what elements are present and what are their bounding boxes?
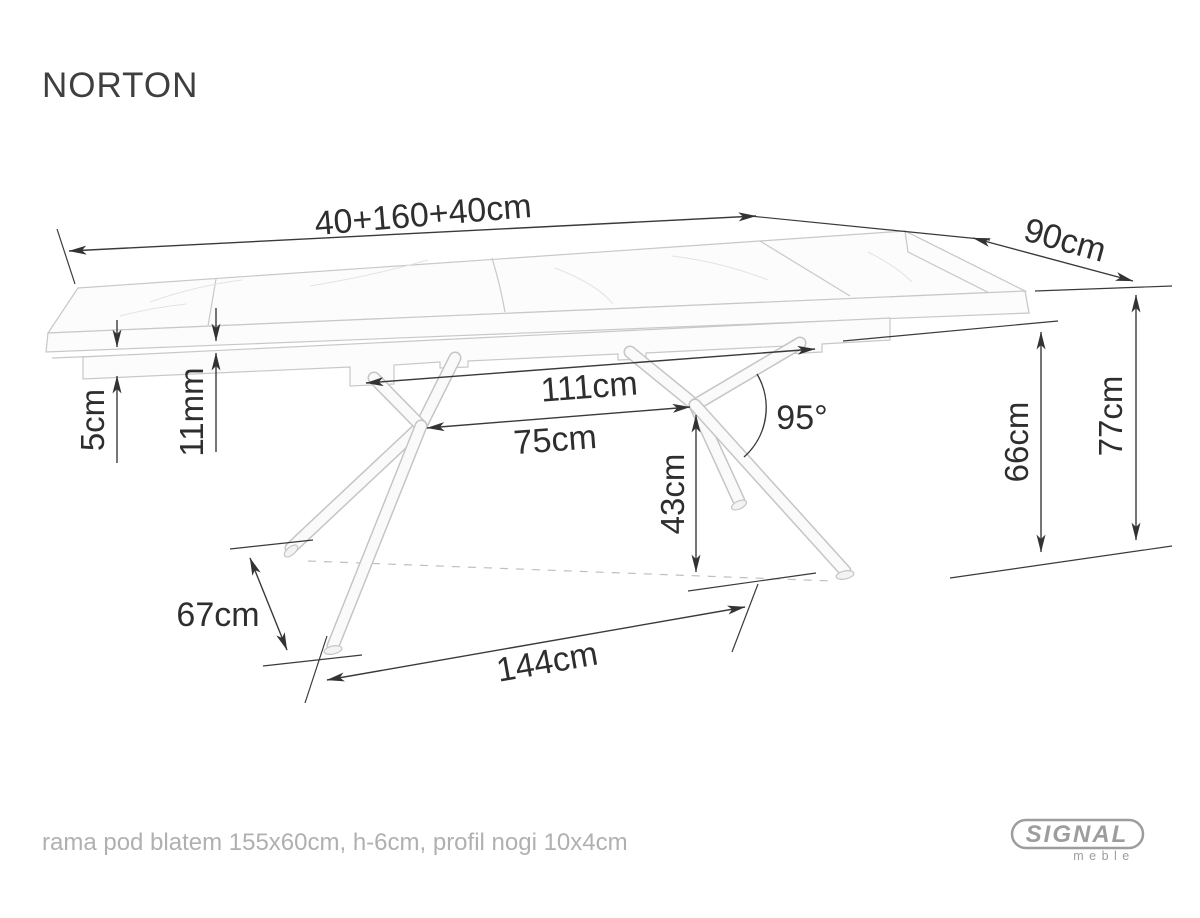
dim-label-hub-height: 43cm	[654, 454, 691, 535]
footer-note: rama pod blatem 155x60cm, h-6cm, profil …	[42, 829, 628, 856]
page-title: NORTON	[42, 66, 198, 105]
table-dimension-diagram: 40+160+40cm 90cm 5cm 11mm 111cm 75cm 43c…	[0, 0, 1200, 918]
dim-label-tabletop-thickness: 5cm	[74, 389, 111, 451]
extension-tick	[732, 584, 758, 652]
dim-label-foot-depth: 67cm	[176, 596, 259, 634]
dim-label-leaf-step: 11mm	[173, 367, 210, 456]
extension-line	[263, 655, 362, 666]
leg	[421, 358, 455, 426]
logo-brand-text: SIGNAL	[1026, 821, 1129, 848]
logo-subbrand-text: meble	[1073, 849, 1135, 863]
dim-label-tabletop-length: 40+160+40cm	[313, 187, 533, 243]
extension-line	[1035, 286, 1172, 291]
extension-tick	[57, 229, 75, 284]
dim-label-leg-hub-span: 75cm	[512, 418, 598, 462]
floor-reference-dashed-line	[308, 561, 832, 581]
dim-label-tabletop-depth: 90cm	[1020, 211, 1110, 270]
leg	[374, 378, 421, 426]
extension-tick	[305, 636, 327, 703]
dim-label-leg-angle: 95°	[776, 399, 827, 437]
brand-logo: SIGNAL meble	[1012, 820, 1143, 863]
dim-label-leg-mount-span: 111cm	[539, 364, 639, 409]
dim-label-table-height: 77cm	[1092, 376, 1129, 457]
extension-line	[688, 573, 816, 591]
leg	[695, 343, 800, 405]
dim-label-foot-span: 144cm	[494, 635, 601, 690]
dim-label-clearance-height: 66cm	[998, 402, 1035, 483]
product-dimension-sheet: 40+160+40cm 90cm 5cm 11mm 111cm 75cm 43c…	[0, 0, 1200, 918]
leg-angle-arc	[744, 374, 766, 457]
extension-line	[950, 546, 1172, 578]
table-foot	[323, 644, 342, 656]
